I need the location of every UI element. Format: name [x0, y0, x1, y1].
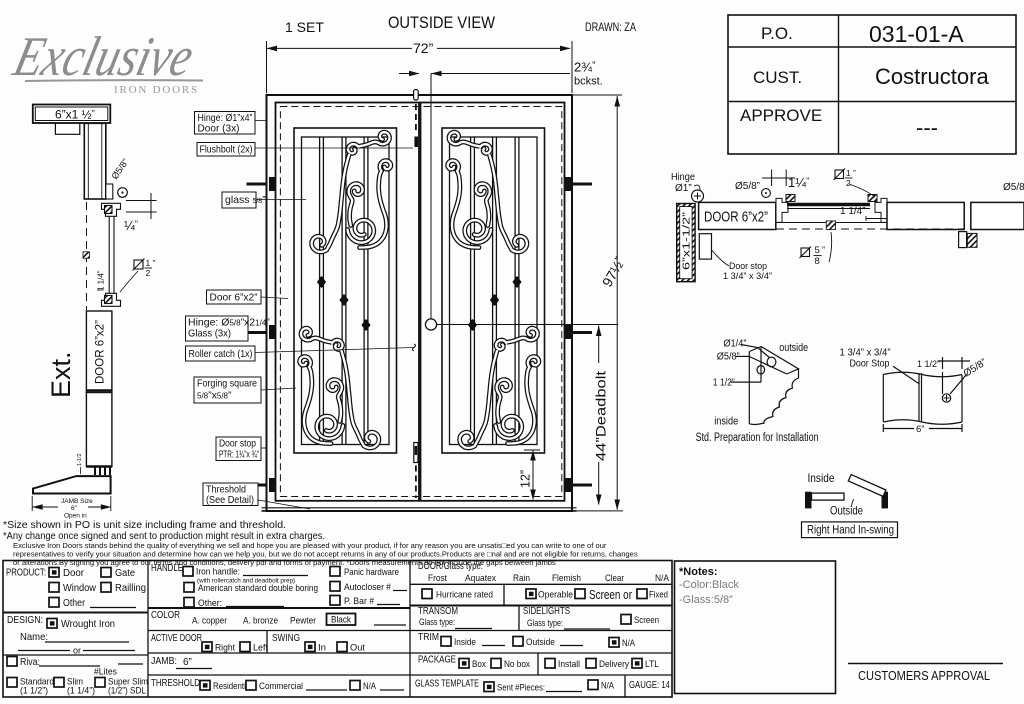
svg-text:”: ”: [822, 245, 825, 255]
svg-text:GLASS TEMPLATE: GLASS TEMPLATE: [415, 679, 479, 690]
svg-text:Inside: Inside: [454, 637, 476, 648]
svg-text:DOOR 6”x2”: DOOR 6”x2”: [95, 320, 107, 384]
svg-text:DOOR 6”x2”: DOOR 6”x2”: [704, 210, 768, 226]
svg-text:Name:: Name:: [20, 632, 48, 643]
svg-text:(1 1/4”): (1 1/4”): [67, 686, 95, 696]
svg-text:JAMB:: JAMB:: [151, 656, 177, 667]
svg-text:Roller catch (1x): Roller catch (1x): [189, 348, 253, 360]
svg-text:Ø1”: Ø1”: [675, 183, 692, 194]
svg-text:APPROVE: APPROVE: [740, 106, 822, 125]
svg-text:Wrought Iron: Wrought Iron: [61, 619, 115, 630]
svg-text:Hinge: Hinge: [671, 172, 695, 183]
svg-text:N/A: N/A: [601, 681, 615, 692]
svg-text:COLOR: COLOR: [151, 610, 180, 621]
svg-text:bckst.: bckst.: [574, 76, 603, 88]
svg-text:THRESHOLD: THRESHOLD: [151, 678, 200, 689]
svg-text:Glass type:: Glass type:: [527, 618, 563, 629]
svg-text:N/A: N/A: [655, 573, 670, 584]
svg-text:6”: 6”: [916, 424, 924, 435]
svg-text:outside: outside: [779, 342, 808, 354]
svg-text:HANDLE: HANDLE: [151, 563, 183, 574]
svg-text:1: 1: [846, 168, 851, 178]
svg-text:Rain: Rain: [513, 573, 530, 584]
svg-text:---: ---: [916, 115, 938, 140]
svg-text:Right Hand In-swing: Right Hand In-swing: [807, 525, 894, 537]
svg-text:2: 2: [146, 268, 151, 278]
svg-text:Gate: Gate: [115, 568, 135, 579]
svg-text:DESIGN:: DESIGN:: [7, 615, 43, 626]
svg-text:Pewter: Pewter: [290, 616, 316, 627]
svg-text:Outside: Outside: [526, 637, 555, 648]
svg-text:Iron handle:: Iron handle:: [196, 567, 240, 578]
svg-text:Door Stop: Door Stop: [850, 358, 890, 370]
svg-text:Commercial: Commercial: [259, 681, 303, 692]
svg-text:(1 1/2”): (1 1/2”): [20, 686, 48, 696]
svg-text:American standard double borin: American standard double boring: [198, 583, 318, 594]
svg-text:Glass (3x): Glass (3x): [188, 328, 231, 340]
svg-text:-Glass:5/8”: -Glass:5/8”: [679, 594, 733, 606]
svg-text:Door 6”x2”: Door 6”x2”: [210, 292, 258, 304]
svg-text:#Lites: #Lites: [94, 667, 117, 677]
svg-text:Left: Left: [253, 643, 268, 654]
svg-text:Ø5/8”: Ø5/8”: [717, 351, 740, 362]
svg-text:(See Detail): (See Detail): [206, 494, 254, 506]
svg-text:Flushbolt (2x): Flushbolt (2x): [200, 144, 253, 156]
svg-text:Panic hardware: Panic hardware: [344, 567, 399, 578]
svg-text:6”x1-1/2”: 6”x1-1/2”: [682, 212, 693, 270]
svg-text:Inside: Inside: [808, 471, 835, 485]
svg-text:PTR: 1¾”x ¾”: PTR: 1¾”x ¾”: [219, 449, 259, 461]
svg-text:IRON DOORS: IRON DOORS: [114, 84, 199, 96]
svg-text:(1/2”) SDL: (1/2”) SDL: [108, 686, 146, 696]
svg-text:Out: Out: [350, 643, 365, 654]
svg-text:TRIM: TRIM: [418, 632, 439, 643]
svg-text:inside: inside: [714, 416, 738, 428]
svg-text:Open in: Open in: [64, 513, 87, 520]
svg-text:GAUGE: 14: GAUGE: 14: [629, 680, 670, 691]
svg-text:SIDELIGHTS: SIDELIGHTS: [523, 606, 570, 617]
svg-text:1¼”: 1¼”: [788, 175, 809, 190]
svg-text:or: or: [73, 646, 81, 656]
svg-text:Clear: Clear: [605, 573, 624, 584]
svg-text:P. Bar #: P. Bar #: [344, 596, 375, 607]
svg-text:72”: 72”: [413, 40, 434, 56]
svg-text:Railling: Railling: [115, 583, 146, 594]
svg-text:5: 5: [815, 245, 820, 256]
svg-text:ACTIVE DOOR: ACTIVE DOOR: [151, 633, 202, 644]
svg-text:Frost: Frost: [428, 573, 447, 584]
svg-text:Ø5/8: Ø5/8: [1003, 182, 1024, 193]
svg-text:”: ”: [853, 168, 856, 178]
svg-text:OUTSIDE VIEW: OUTSIDE VIEW: [388, 14, 495, 32]
svg-text:LTL: LTL: [645, 659, 659, 670]
svg-text:A. bronze: A. bronze: [243, 616, 278, 627]
svg-text:Box: Box: [472, 659, 486, 670]
svg-text:Door: Door: [63, 568, 85, 579]
svg-text:DOOR/Glass type:: DOOR/Glass type:: [418, 561, 483, 572]
svg-text:Aquatex: Aquatex: [465, 573, 496, 584]
svg-text:1 1/2”: 1 1/2”: [713, 378, 735, 389]
svg-text:PRODUCT:: PRODUCT:: [6, 568, 46, 579]
svg-text:No box: No box: [504, 659, 530, 670]
svg-text:Screen or: Screen or: [589, 588, 632, 602]
svg-text:CUSTOMERS APPROVAL: CUSTOMERS APPROVAL: [858, 669, 990, 683]
svg-text:2: 2: [846, 178, 851, 188]
svg-text:5/8”x5/8”: 5/8”x5/8”: [197, 390, 232, 402]
svg-text:Other: Other: [63, 598, 86, 609]
svg-text:1 1/4”: 1 1/4”: [97, 270, 106, 291]
svg-text:P.O.: P.O.: [761, 24, 793, 43]
svg-text:Autocloser #: Autocloser #: [344, 582, 392, 593]
svg-text:1 1/2”: 1 1/2”: [917, 359, 940, 370]
svg-text:N/A: N/A: [622, 638, 636, 649]
svg-text:1-1/2: 1-1/2: [77, 453, 83, 466]
svg-text:6”: 6”: [71, 505, 77, 512]
svg-text:Hurricane rated: Hurricane rated: [436, 590, 493, 601]
svg-text:12”: 12”: [519, 470, 533, 488]
svg-text:Right: Right: [215, 643, 235, 654]
svg-text:6”x1 ½”: 6”x1 ½”: [55, 108, 95, 122]
svg-text:Forging square: Forging square: [197, 378, 257, 390]
svg-text:In: In: [318, 643, 326, 654]
svg-text:N/A: N/A: [363, 681, 377, 692]
svg-text:6”: 6”: [183, 657, 192, 668]
svg-text:1 SET: 1 SET: [285, 19, 324, 35]
svg-text:1 3/4” x 3/4”: 1 3/4” x 3/4”: [723, 271, 772, 282]
svg-text:A. copper: A. copper: [192, 616, 227, 627]
svg-text:8: 8: [815, 256, 820, 267]
svg-text:031-01-A: 031-01-A: [869, 21, 964, 47]
svg-text:Exclusive: Exclusive: [7, 26, 199, 88]
svg-text:”: ”: [153, 258, 156, 268]
svg-text:-Color:Black: -Color:Black: [679, 579, 739, 591]
svg-text:Sent #Pieces:: Sent #Pieces:: [497, 683, 545, 694]
svg-text:Black: Black: [331, 615, 351, 626]
svg-text:PACKAGE: PACKAGE: [418, 655, 456, 666]
svg-text:Glass type:: Glass type:: [419, 617, 455, 628]
svg-text:Ø5/8”: Ø5/8”: [735, 181, 760, 192]
svg-text:Screen: Screen: [634, 615, 659, 626]
svg-text:Delivery: Delivery: [599, 659, 629, 670]
svg-text:Outside: Outside: [830, 504, 863, 518]
svg-text:*Notes:: *Notes:: [679, 566, 718, 578]
svg-text:TRANSOM: TRANSOM: [418, 606, 458, 617]
svg-text:Fixed: Fixed: [649, 590, 668, 601]
svg-text:Flemish: Flemish: [552, 573, 581, 584]
svg-text:Other:: Other:: [198, 598, 222, 609]
svg-text:Std. Preparation for Installat: Std. Preparation for Installation: [696, 432, 819, 444]
svg-text:44”Deadbolt: 44”Deadbolt: [594, 371, 609, 461]
svg-text:Operable: Operable: [538, 590, 573, 601]
svg-text:JAMB Size: JAMB Size: [61, 498, 93, 505]
svg-text:Window: Window: [63, 583, 97, 594]
svg-text:Install: Install: [558, 659, 580, 670]
svg-text:1 1/4”: 1 1/4”: [840, 206, 866, 217]
svg-text:Ext.: Ext.: [46, 351, 76, 398]
svg-text:CUST.: CUST.: [753, 68, 802, 87]
svg-text:1: 1: [146, 258, 151, 268]
svg-text:Costructora: Costructora: [875, 64, 989, 89]
svg-text:Ø1/4”: Ø1/4”: [723, 339, 746, 350]
svg-text:DRAWN: ZA: DRAWN: ZA: [585, 22, 636, 34]
svg-text:Riva:: Riva:: [20, 657, 40, 668]
svg-text:Door (3x): Door (3x): [198, 123, 240, 135]
svg-text:SWING: SWING: [272, 633, 300, 644]
